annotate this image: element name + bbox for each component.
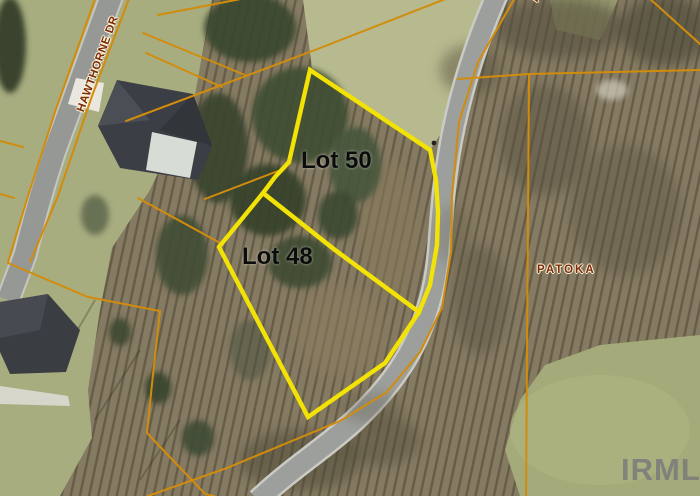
aerial-parcel-map: HAWTHORNE DR P Lot 50 Lot 48 PATOKA IRML… — [0, 0, 700, 496]
satellite-map-canvas — [0, 0, 700, 496]
road-object-dot — [432, 141, 437, 146]
clearing-highlight — [510, 375, 690, 485]
